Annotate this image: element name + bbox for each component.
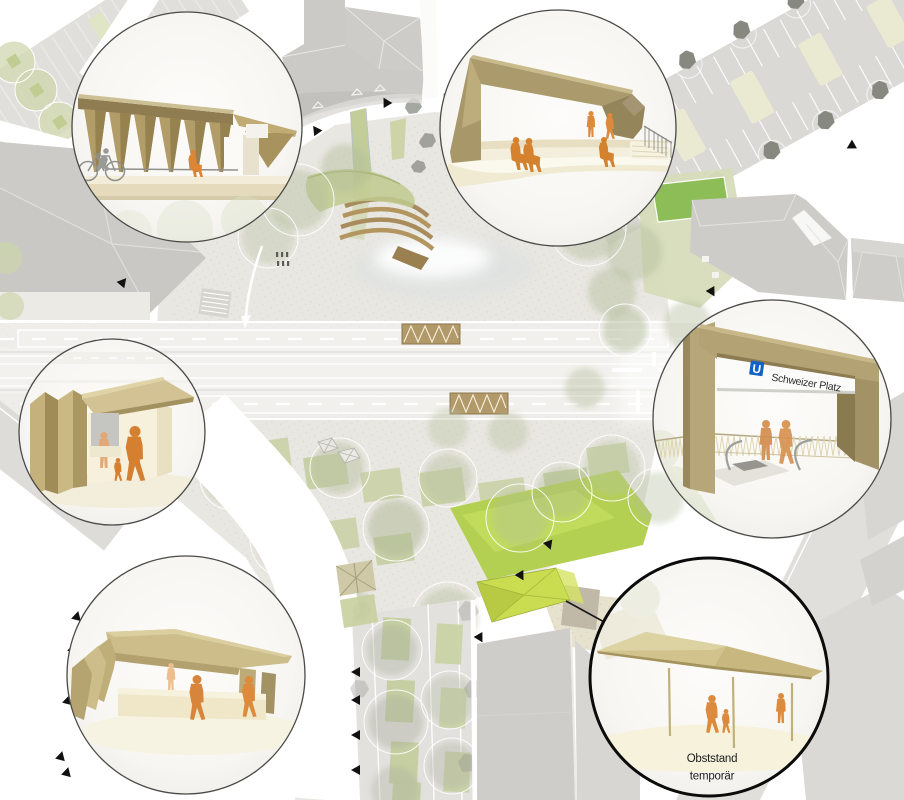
svg-text:Obststand: Obststand — [687, 753, 738, 765]
svg-text:temporär: temporär — [690, 771, 735, 783]
